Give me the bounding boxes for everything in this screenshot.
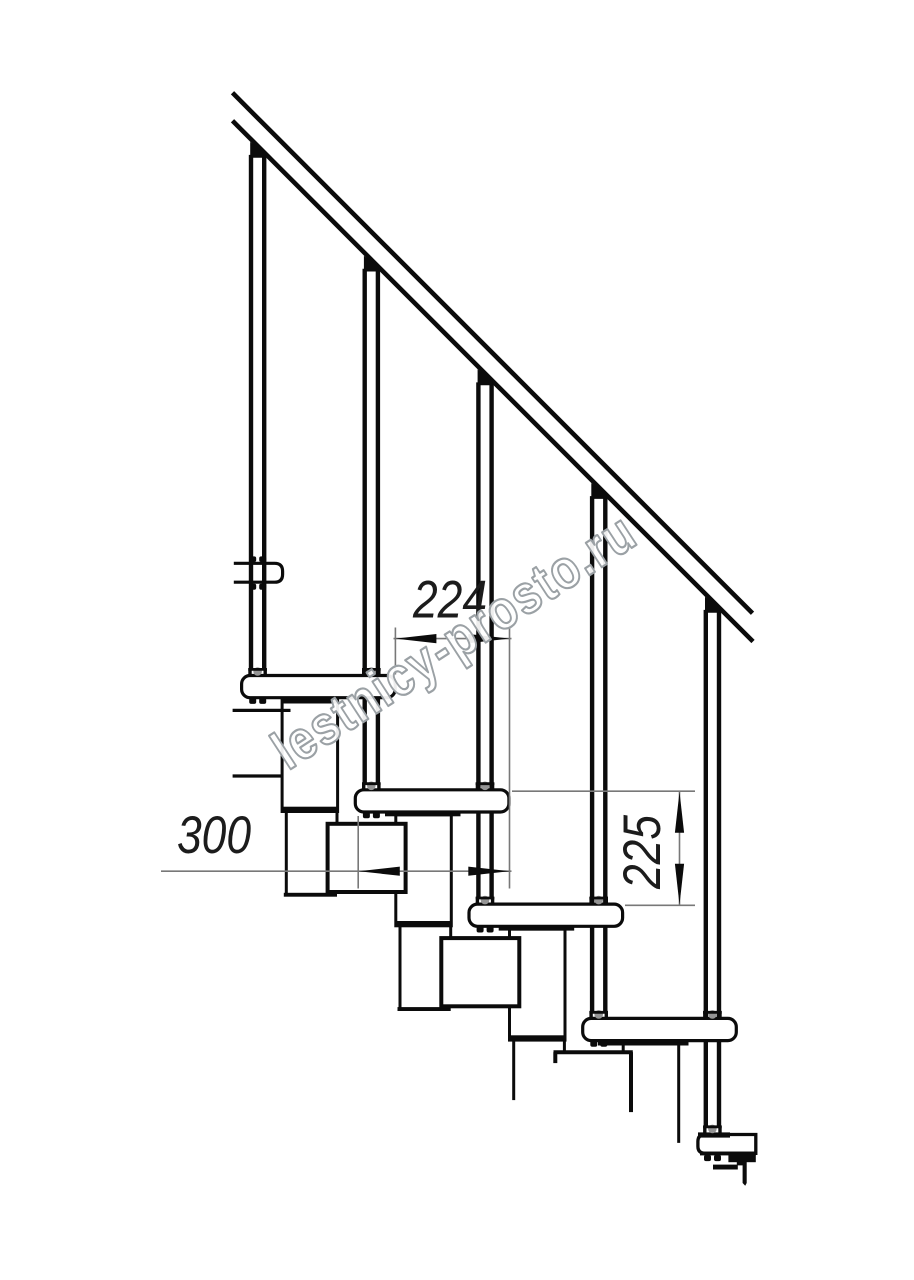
svg-text:225: 225 [613,815,672,890]
svg-text:300: 300 [177,806,251,865]
